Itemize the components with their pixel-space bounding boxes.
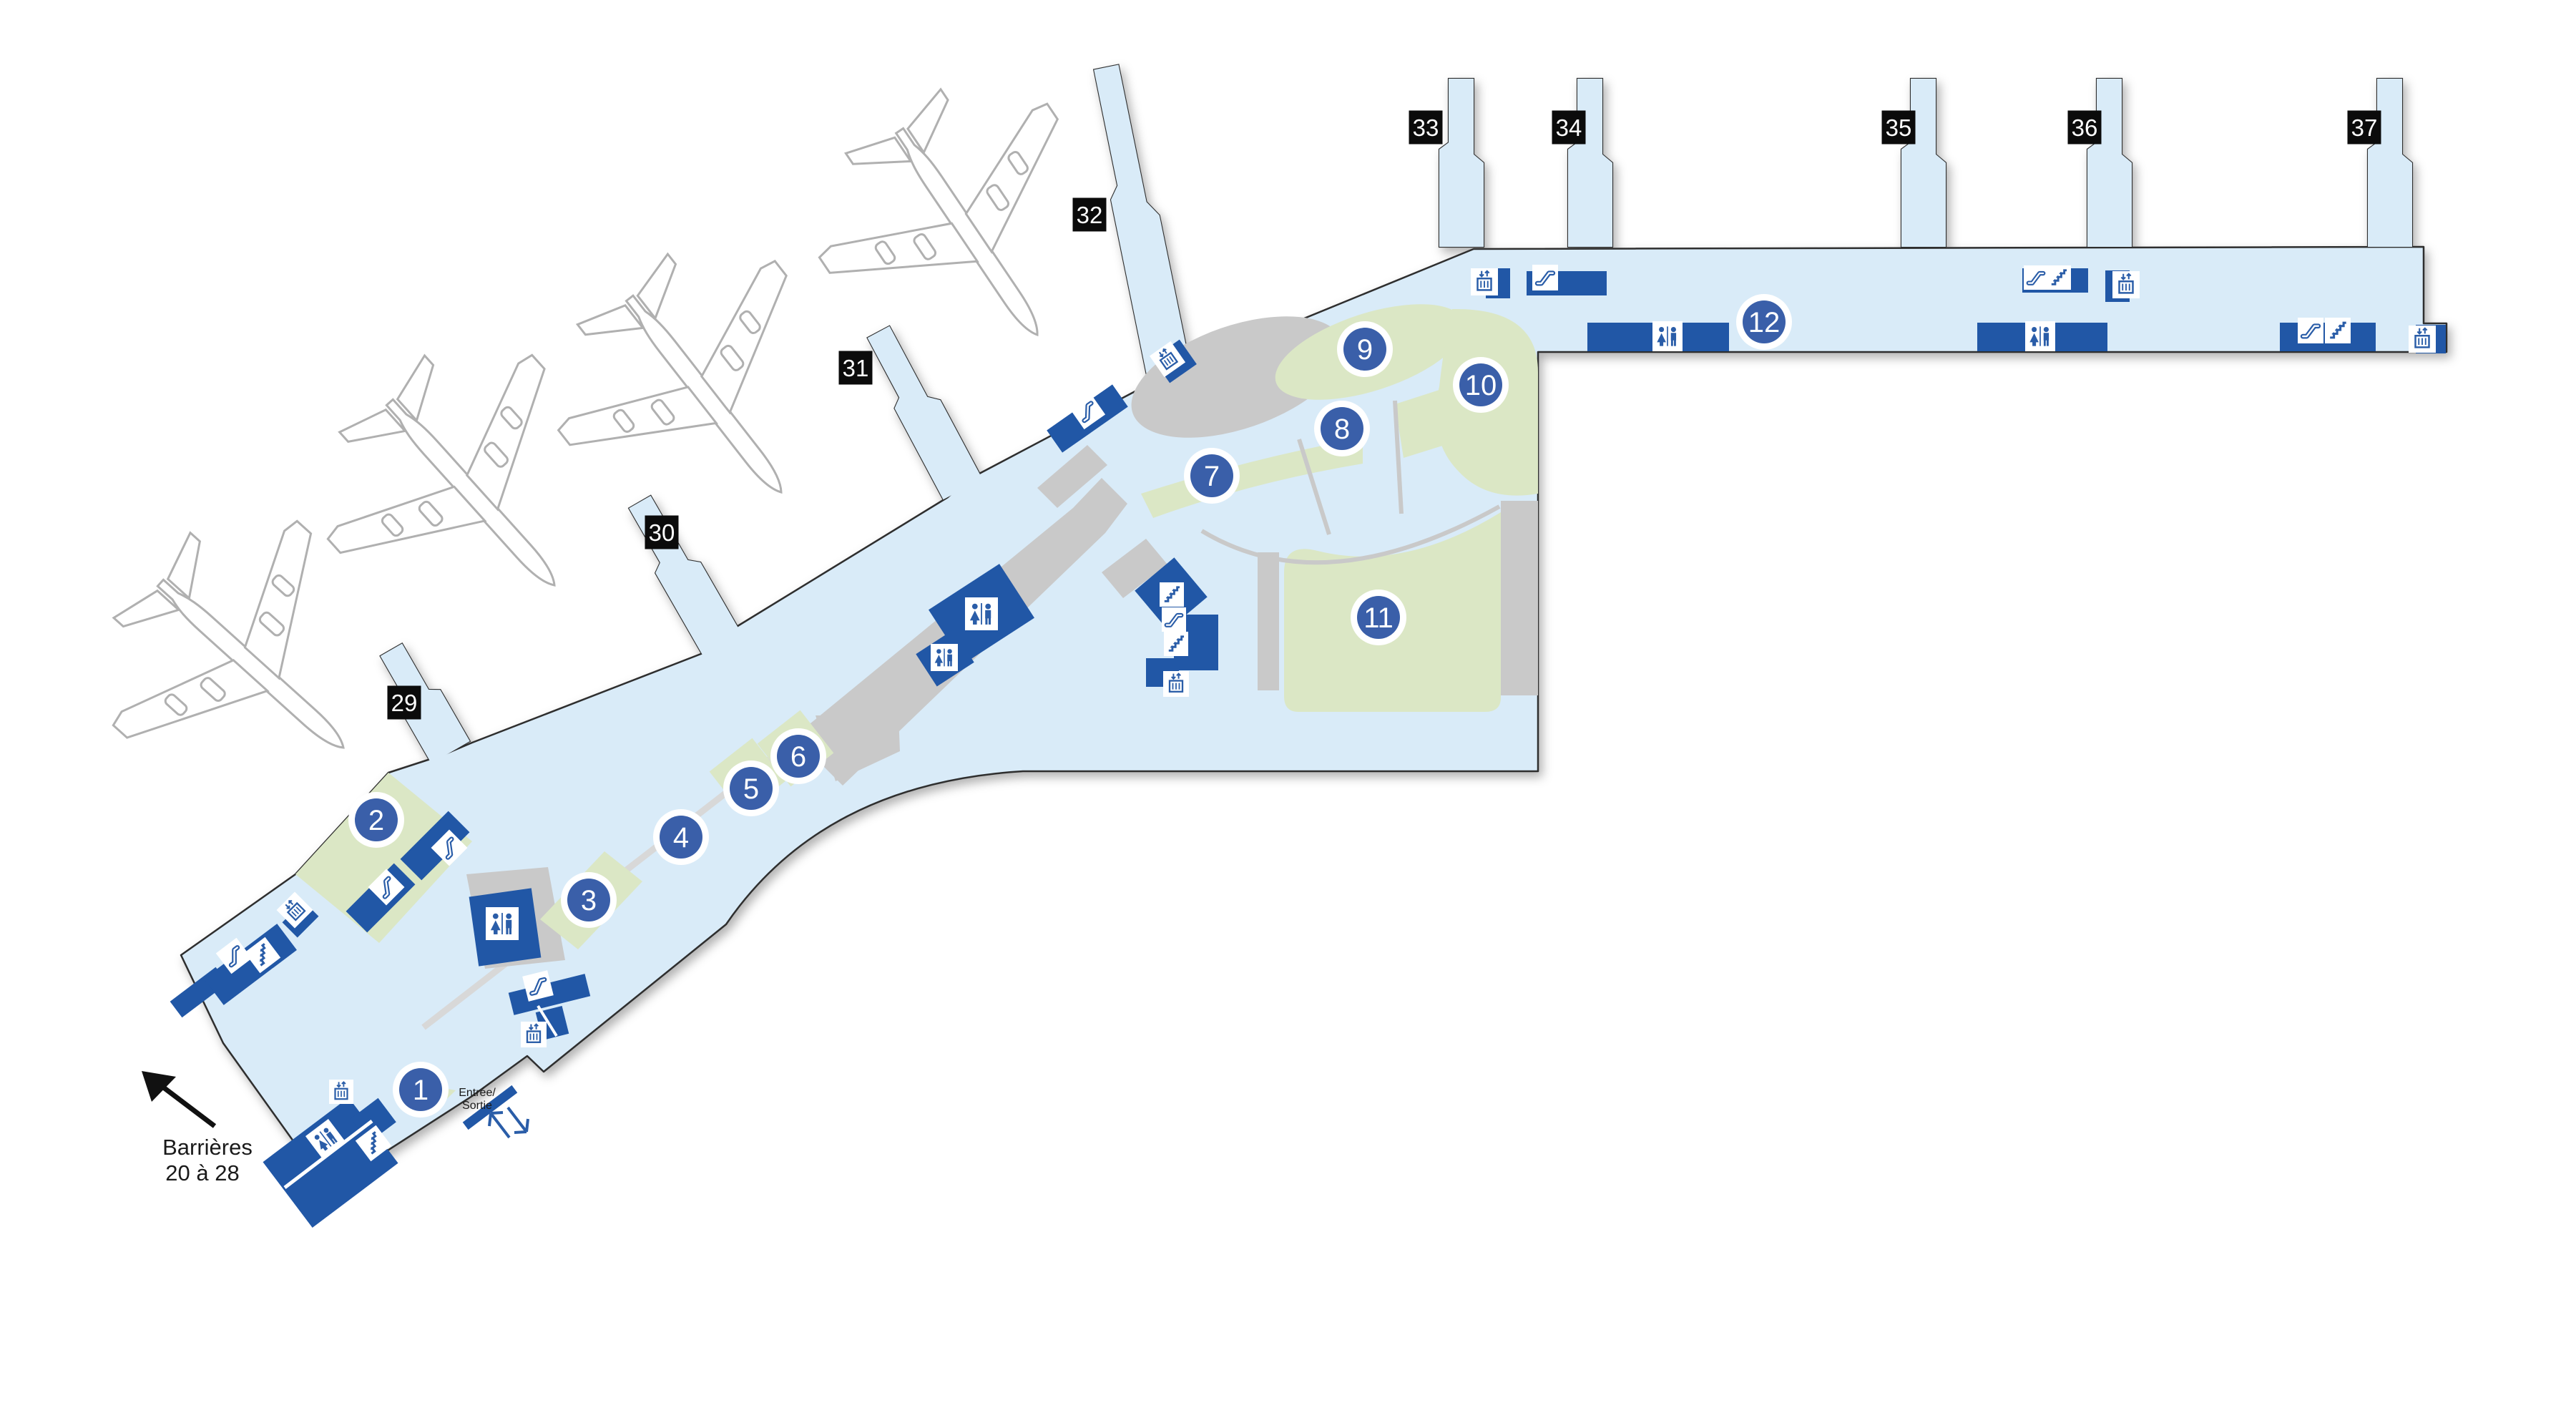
gate-label-35: 35 [1882, 111, 1916, 145]
svg-text:8: 8 [1334, 414, 1350, 445]
restroom-icon [931, 644, 958, 671]
elevator-icon [521, 1022, 547, 1047]
poi-marker-7: 7 [1184, 448, 1240, 504]
gate-finger-fill-37 [2368, 79, 2412, 247]
gate-finger-fill-34 [1568, 79, 1612, 247]
svg-text:1: 1 [413, 1075, 428, 1106]
escalator-icon [1162, 607, 1186, 632]
gate-finger-fill-31 [868, 326, 983, 500]
gate-label-34: 34 [1552, 111, 1586, 145]
escalator-icon [2024, 265, 2048, 290]
svg-text:11: 11 [1363, 602, 1394, 634]
gate-finger-fill-32 [1094, 65, 1190, 377]
gate-label-31: 31 [839, 351, 873, 385]
svg-text:10: 10 [1465, 370, 1497, 401]
gate-label-36: 36 [2068, 111, 2102, 145]
gate-finger-fill-36 [2087, 79, 2132, 247]
svg-text:2: 2 [368, 805, 384, 836]
airport-terminal-map: 293031323334353637 123456789101112 Barri… [0, 0, 2576, 1423]
elevator-icon [2409, 326, 2436, 353]
poi-marker-12: 12 [1736, 294, 1792, 350]
gate-label-32: 32 [1073, 198, 1107, 232]
barriers-label-line1: Barrières [162, 1135, 253, 1160]
poi-marker-8: 8 [1314, 401, 1370, 456]
poi-marker-3: 3 [561, 872, 617, 928]
restroom-icon [2025, 321, 2055, 351]
gate-finger-fill-33 [1439, 79, 1484, 247]
restroom-icon [965, 597, 998, 630]
svg-text:5: 5 [743, 773, 759, 805]
elevator-icon [1163, 671, 1189, 697]
stairs-icon [2325, 318, 2351, 343]
gate-label-37: 37 [2348, 111, 2381, 145]
barriers-arrow-head [142, 1071, 176, 1102]
poi-marker-6: 6 [770, 728, 826, 784]
svg-text:6: 6 [790, 741, 806, 773]
barriers-label-line2: 20 à 28 [165, 1160, 239, 1185]
svg-text:7: 7 [1204, 461, 1220, 492]
escalator-icon [1532, 265, 1558, 290]
svg-text:32: 32 [1077, 202, 1103, 228]
restroom-icon [486, 907, 519, 940]
poi-marker-1: 1 [393, 1062, 449, 1118]
poi-marker-4: 4 [653, 809, 709, 865]
svg-text:35: 35 [1886, 114, 1912, 141]
svg-text:9: 9 [1357, 334, 1373, 366]
poi-marker-9: 9 [1337, 321, 1393, 377]
svg-text:30: 30 [649, 519, 675, 546]
gate-label-29: 29 [388, 686, 421, 720]
entrance-label-line2: Sortie [462, 1100, 492, 1112]
elevator-icon [1471, 268, 1498, 295]
elevator-icon [2112, 271, 2140, 298]
svg-text:34: 34 [1556, 114, 1582, 141]
svg-text:29: 29 [391, 690, 418, 716]
entrance-label-line1: Entrée/ [459, 1087, 496, 1099]
poi-marker-10: 10 [1453, 357, 1509, 413]
svg-text:4: 4 [673, 822, 689, 854]
poi-marker-2: 2 [348, 792, 404, 848]
gate-label-30: 30 [645, 516, 679, 549]
restroom-icon [1652, 321, 1683, 351]
airplane-outline [280, 302, 656, 677]
svg-text:3: 3 [581, 885, 597, 916]
gate-label-33: 33 [1409, 111, 1443, 145]
entrance-arrows-icon [489, 1107, 528, 1138]
stairs-icon [1160, 582, 1184, 607]
terminal-floorplan-svg: 293031323334353637 123456789101112 Barri… [0, 0, 2576, 1423]
gate-finger-fill-35 [1901, 79, 1946, 247]
stairs-icon [2047, 265, 2071, 290]
poi-marker-5: 5 [723, 761, 779, 816]
svg-text:37: 37 [2351, 114, 2378, 141]
svg-text:12: 12 [1748, 307, 1781, 338]
barriers-arrow [156, 1082, 215, 1126]
svg-text:33: 33 [1413, 114, 1439, 141]
stairs-icon [1164, 632, 1188, 656]
poi-marker-11: 11 [1351, 590, 1406, 645]
elevator-icon [329, 1080, 353, 1104]
svg-text:36: 36 [2072, 114, 2098, 141]
svg-text:31: 31 [843, 355, 869, 381]
escalator-icon [2298, 318, 2323, 343]
